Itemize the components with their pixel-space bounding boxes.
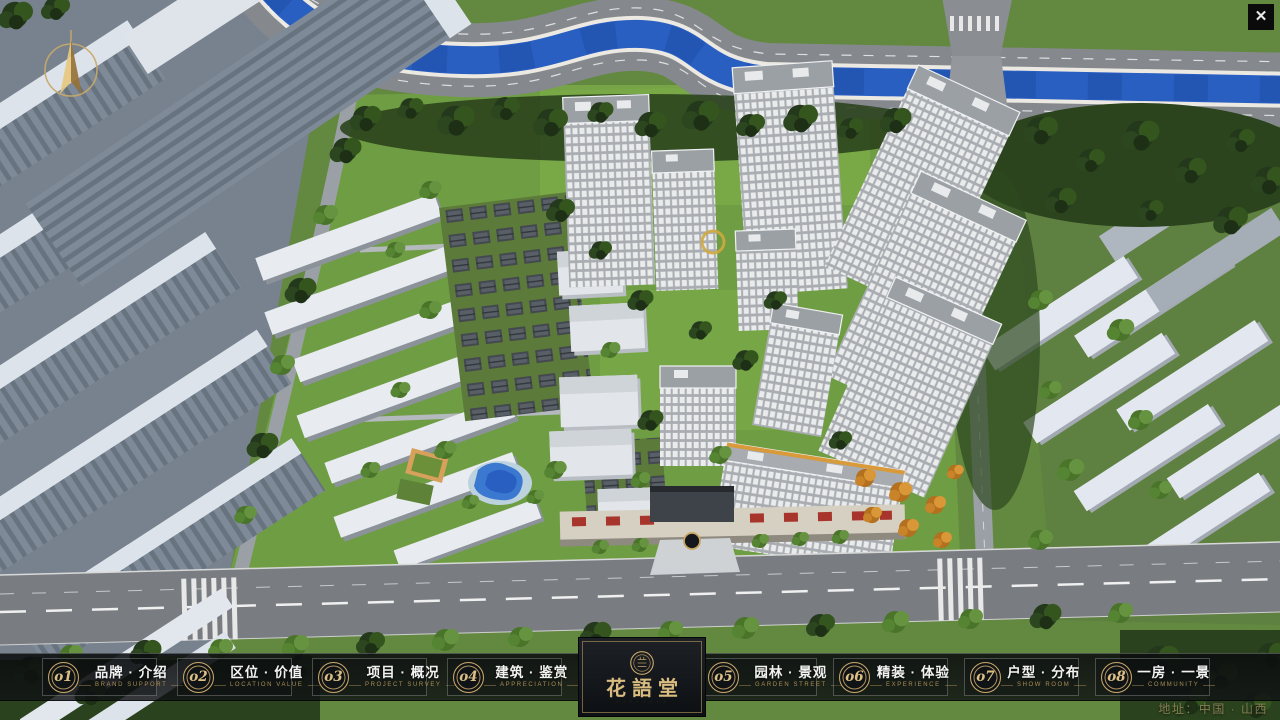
- nav-item-views[interactable]: o8 一房 · 一景 COMMUNITY: [1095, 658, 1210, 696]
- item-number-badge: o5: [708, 662, 739, 693]
- nav-item-brand[interactable]: o1 品牌 · 介绍 BRAND SUPPORT: [42, 658, 157, 696]
- nav-group-right: o5 园林 · 景观 GARDEN STREET o6 精装 · 体验 EXPE…: [702, 658, 1210, 696]
- seal-emblem-icon: [629, 650, 655, 676]
- logo-inner-frame: 花語堂 · · · · · · · ·: [582, 641, 702, 713]
- item-number-badge: o7: [970, 662, 1001, 693]
- item-number-badge: o3: [318, 662, 349, 693]
- compass-icon: [36, 28, 106, 106]
- nav-sublabel: APPRECIATION: [484, 682, 579, 688]
- nav-label: 户型 · 分布: [1007, 666, 1080, 680]
- nav-label: 一房 · 一景: [1137, 666, 1210, 680]
- close-button[interactable]: ✕: [1248, 4, 1274, 30]
- project-logo-panel[interactable]: 花語堂 · · · · · · · ·: [578, 637, 706, 717]
- nav-sublabel: PROJECT SURVEY: [349, 682, 458, 688]
- item-number-badge: o4: [453, 662, 484, 693]
- item-number-badge: o2: [183, 662, 214, 693]
- nav-item-project[interactable]: o3 项目 · 概况 PROJECT SURVEY: [312, 658, 427, 696]
- nav-group-left: o1 品牌 · 介绍 BRAND SUPPORT o2 区位 · 价值 LOCA…: [42, 658, 562, 696]
- nav-sublabel: EXPERIENCE: [870, 682, 957, 688]
- nav-label: 区位 · 价值: [230, 666, 303, 680]
- nav-sublabel: BRAND SUPPORT: [79, 682, 183, 688]
- nav-item-architecture[interactable]: o4 建筑 · 鉴赏 APPRECIATION: [447, 658, 562, 696]
- nav-label: 建筑 · 鉴赏: [495, 666, 568, 680]
- nav-label: 项目 · 概况: [367, 666, 440, 680]
- nav-label: 精装 · 体验: [877, 666, 950, 680]
- nav-item-location[interactable]: o2 区位 · 价值 LOCATION VALUE: [177, 658, 292, 696]
- item-number-badge: o1: [48, 662, 79, 693]
- nav-sublabel: LOCATION VALUE: [214, 682, 320, 688]
- nav-item-floorplan[interactable]: o7 户型 · 分布 SHOW ROOM: [964, 658, 1079, 696]
- nav-label: 园林 · 景观: [754, 666, 827, 680]
- nav-item-interior[interactable]: o6 精装 · 体验 EXPERIENCE: [833, 658, 948, 696]
- item-number-badge: o8: [1101, 662, 1132, 693]
- item-number-badge: o6: [839, 662, 870, 693]
- nav-item-garden[interactable]: o5 园林 · 景观 GARDEN STREET: [702, 658, 817, 696]
- nav-sublabel: COMMUNITY: [1132, 682, 1215, 688]
- presentation-stage: ✕ o1 品牌 · 介绍 BRAND SUPPORT o2 区位 · 价值 LO…: [0, 0, 1280, 720]
- address-text: 地址：中国 · 山西: [1158, 700, 1268, 717]
- nav-sublabel: SHOW ROOM: [1001, 682, 1086, 688]
- project-name: 花語堂: [600, 678, 684, 698]
- project-tagline: · · · · · · · ·: [617, 700, 668, 705]
- aerial-map[interactable]: [0, 0, 1280, 720]
- nav-label: 品牌 · 介绍: [95, 666, 168, 680]
- nav-sublabel: GARDEN STREET: [739, 682, 843, 688]
